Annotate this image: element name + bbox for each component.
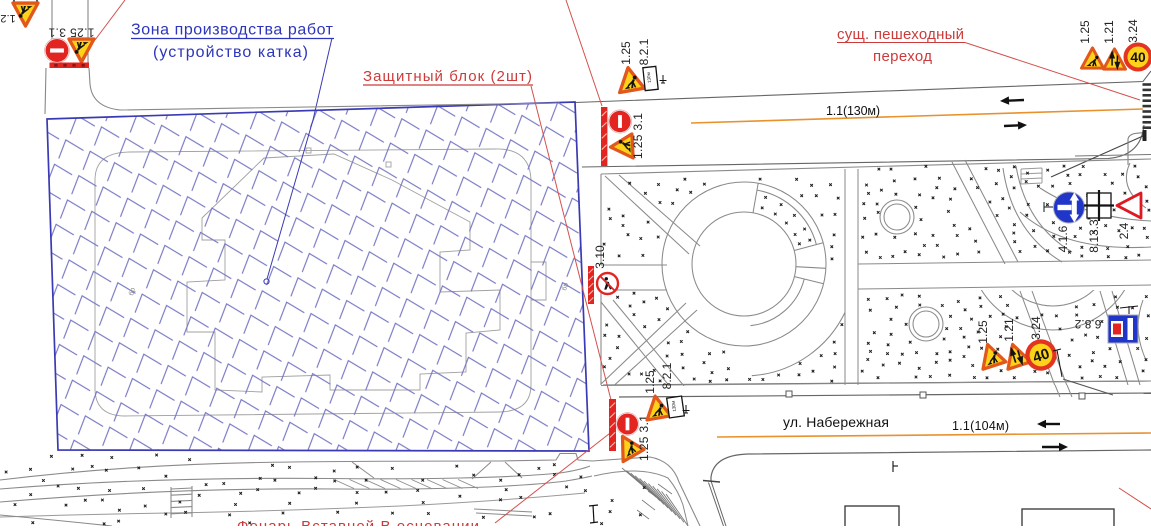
svg-text:1.25: 1.25 <box>619 41 633 65</box>
svg-text:Защитный блок (2шт): Защитный блок (2шт) <box>363 68 532 85</box>
svg-text:2.4: 2.4 <box>1117 222 1131 239</box>
svg-text:ул. Набережная: ул. Набережная <box>783 414 889 430</box>
svg-text:3.10: 3.10 <box>593 245 607 269</box>
svg-text:1.25: 1.25 <box>1078 20 1092 44</box>
svg-text:6.8.2: 6.8.2 <box>1074 317 1101 331</box>
svg-text:3.24: 3.24 <box>1126 19 1140 43</box>
svg-text:8.2.1: 8.2.1 <box>637 38 651 65</box>
svg-text:1.25 3.1: 1.25 3.1 <box>637 415 651 461</box>
svg-text:1.21: 1.21 <box>1102 20 1116 44</box>
svg-text:Зона производства работ: Зона производства работ <box>131 22 334 39</box>
svg-text:Фонарь Вставной В основании: Фонарь Вставной В основании <box>237 518 479 526</box>
svg-text:переход: переход <box>873 48 932 65</box>
svg-text:1.1(104м): 1.1(104м) <box>952 419 1009 433</box>
svg-text:8.2.1: 8.2.1 <box>660 362 674 389</box>
svg-text:1.1(130м): 1.1(130м) <box>826 104 880 118</box>
svg-text:4.1.6: 4.1.6 <box>1056 225 1070 252</box>
svg-text:8.13.3: 8.13.3 <box>1087 219 1101 253</box>
svg-text:1.25: 1.25 <box>976 320 990 344</box>
svg-text:1.25: 1.25 <box>643 370 657 394</box>
svg-text:1.25: 1.25 <box>0 12 16 24</box>
svg-text:3.24: 3.24 <box>1029 316 1043 340</box>
svg-text:1.25 3.1: 1.25 3.1 <box>631 113 645 159</box>
svg-text:(устройство катка): (устройство катка) <box>153 44 308 61</box>
svg-text:1.21: 1.21 <box>1002 318 1016 342</box>
svg-text:40: 40 <box>1130 50 1146 65</box>
svg-text:сущ. пешеходный: сущ. пешеходный <box>837 26 964 43</box>
svg-text:1.25 3.1: 1.25 3.1 <box>48 26 94 40</box>
